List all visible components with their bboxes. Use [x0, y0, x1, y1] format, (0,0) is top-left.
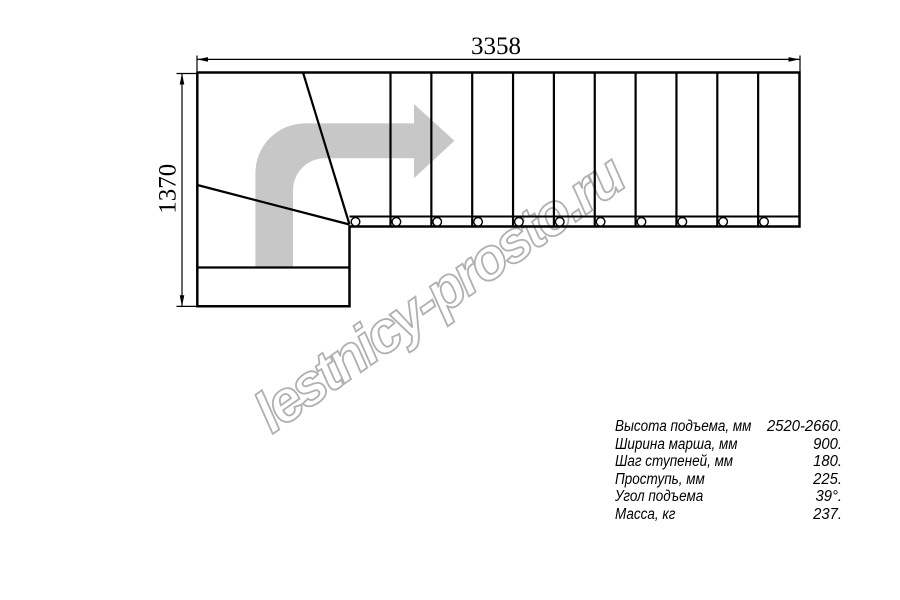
svg-text:lestnicy-prosto.ru: lestnicy-prosto.ru	[242, 141, 637, 445]
svg-text:3358: 3358	[471, 33, 521, 60]
svg-text:1370: 1370	[154, 164, 181, 214]
